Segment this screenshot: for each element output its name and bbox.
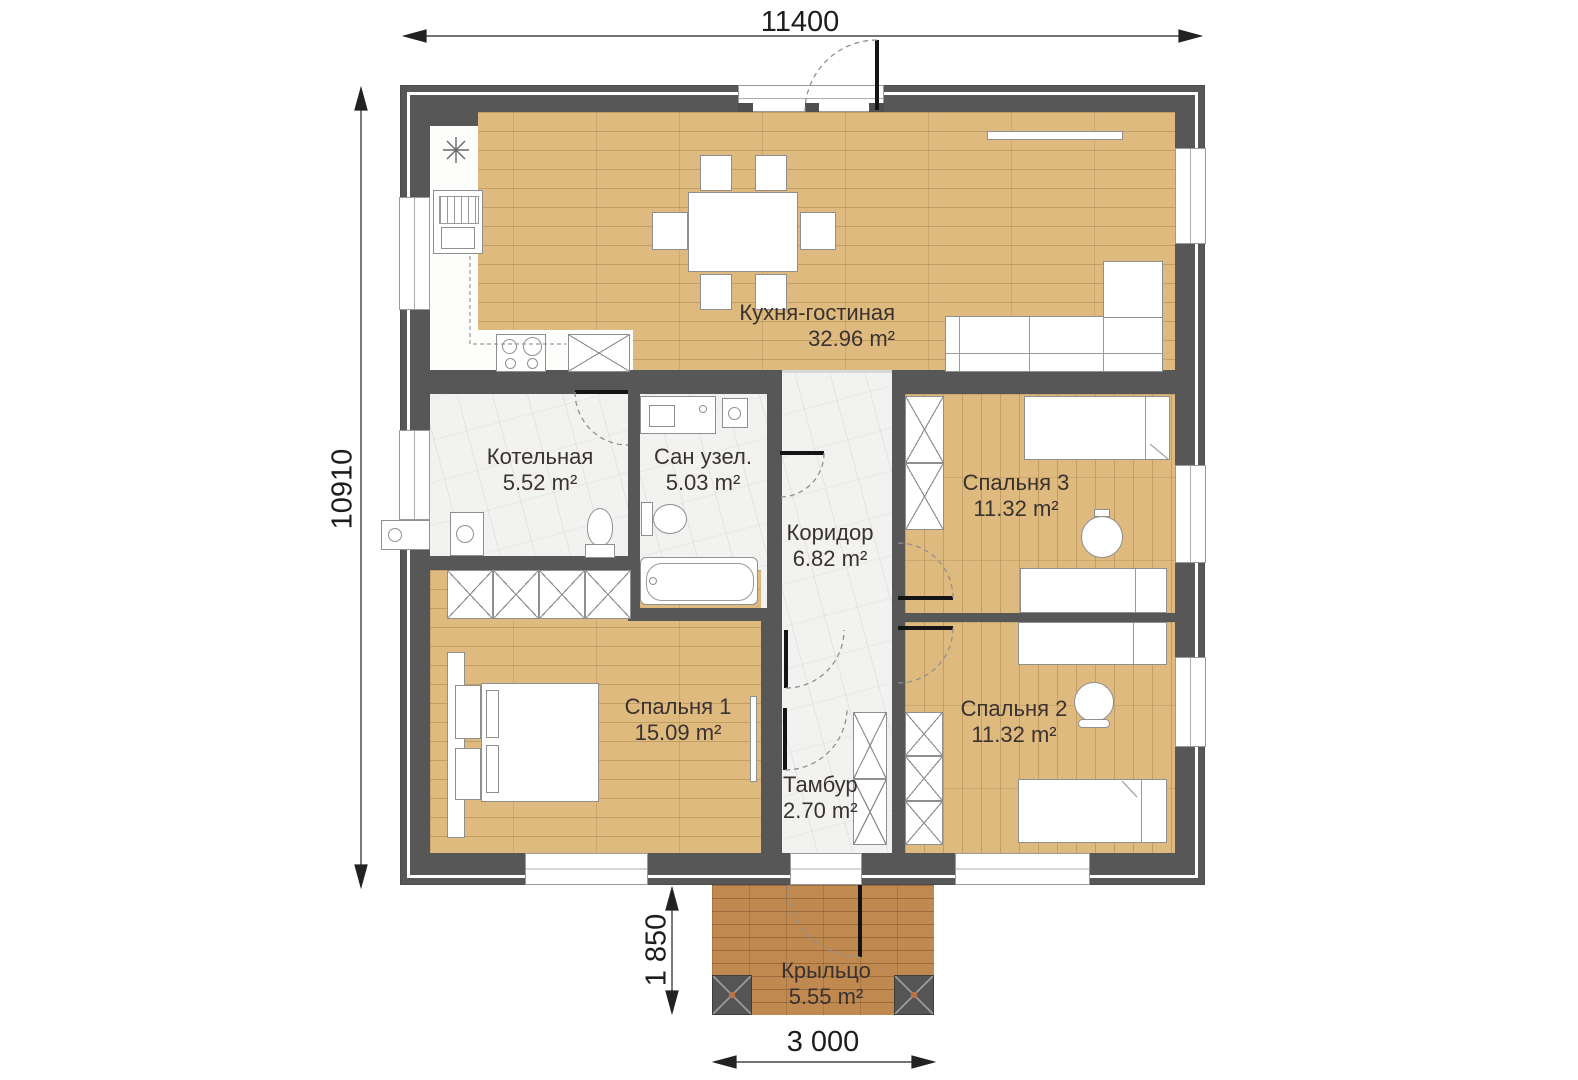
dimension-overall-width: 11400 bbox=[761, 6, 840, 39]
room-name: Тамбур bbox=[783, 772, 858, 798]
door-swing-arcs bbox=[575, 40, 953, 957]
kitchen-counter-dashed-line bbox=[470, 256, 566, 344]
room-name: Спальня 3 bbox=[963, 470, 1070, 496]
freezer-icon bbox=[443, 137, 469, 163]
room-label-bedroom1: Спальня 1 15.09 m² bbox=[625, 694, 732, 746]
room-label-porch: Крыльцо 5.55 m² bbox=[781, 958, 871, 1010]
room-name: Кухня-гостиная bbox=[739, 300, 895, 326]
door-leaves bbox=[575, 40, 953, 957]
floor-plan-canvas: 11400 10910 1 850 3 000 Кухня-гостиная 3… bbox=[0, 0, 1578, 1080]
room-label-boiler: Котельная 5.52 m² bbox=[487, 444, 594, 496]
room-name: Спальня 1 bbox=[625, 694, 732, 720]
room-name: Котельная bbox=[487, 444, 594, 470]
dimension-overall-height: 10910 bbox=[327, 449, 360, 530]
room-area: 15.09 m² bbox=[625, 720, 732, 746]
room-area: 11.32 m² bbox=[963, 496, 1070, 522]
room-label-vestibule: Тамбур 2.70 m² bbox=[783, 772, 858, 824]
room-label-kitchen-living: Кухня-гостиная 32.96 m² bbox=[739, 300, 895, 352]
room-label-bedroom3: Спальня 3 11.32 m² bbox=[963, 470, 1070, 522]
room-area: 5.55 m² bbox=[781, 984, 871, 1010]
room-name: Крыльцо bbox=[781, 958, 871, 984]
room-area: 32.96 m² bbox=[739, 326, 895, 352]
room-name: Коридор bbox=[787, 520, 874, 546]
room-label-corridor: Коридор 6.82 m² bbox=[787, 520, 874, 572]
dimension-porch-width: 3 000 bbox=[787, 1026, 860, 1059]
room-area: 11.32 m² bbox=[961, 722, 1068, 748]
room-area: 2.70 m² bbox=[783, 798, 858, 824]
room-label-bathroom: Сан узел. 5.03 m² bbox=[654, 444, 752, 496]
room-name: Спальня 2 bbox=[961, 696, 1068, 722]
room-area: 5.03 m² bbox=[654, 470, 752, 496]
blanket-fold-lines bbox=[1122, 444, 1168, 797]
room-area: 6.82 m² bbox=[787, 546, 874, 572]
room-area: 5.52 m² bbox=[487, 470, 594, 496]
room-label-bedroom2: Спальня 2 11.32 m² bbox=[961, 696, 1068, 748]
room-name: Сан узел. bbox=[654, 444, 752, 470]
dimension-porch-depth: 1 850 bbox=[641, 914, 674, 987]
